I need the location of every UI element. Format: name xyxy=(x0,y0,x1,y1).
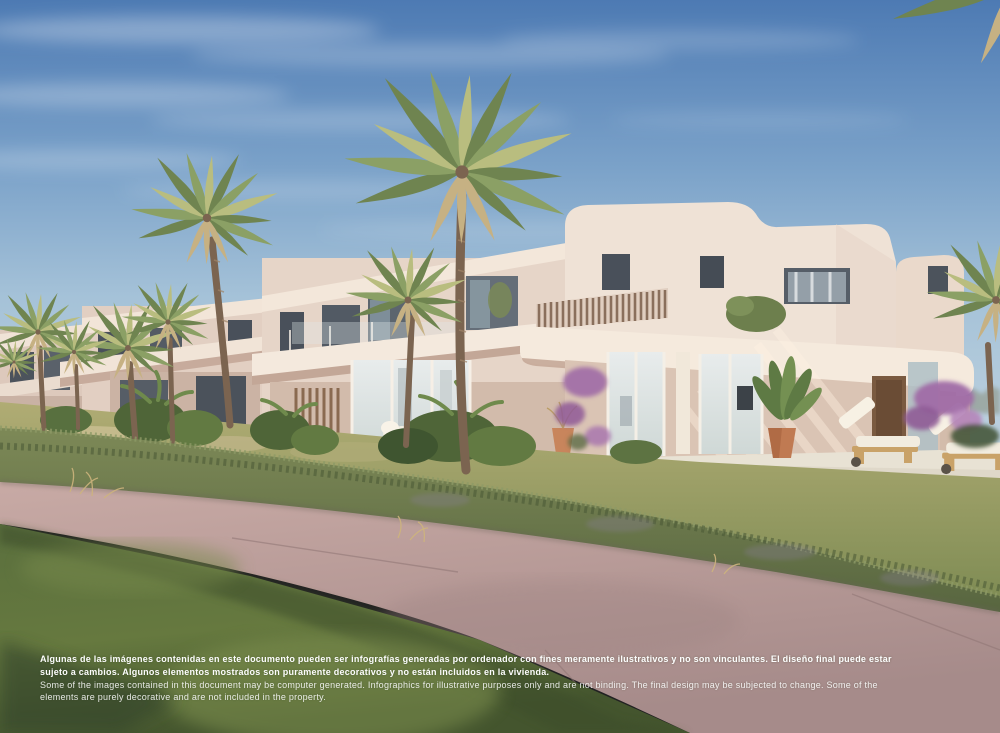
property-render-image: Algunas de las imágenes contenidas en es… xyxy=(0,0,1000,733)
disclaimer-es-line2: sujeto a cambios. Algunos elementos most… xyxy=(40,666,970,679)
disclaimer-text: Algunas de las imágenes contenidas en es… xyxy=(40,653,970,704)
render-scene xyxy=(0,0,1000,733)
disclaimer-es-line1: Algunas de las imágenes contenidas en es… xyxy=(40,653,970,666)
disclaimer-en-line2: elements are purely decorative and are n… xyxy=(40,691,970,704)
disclaimer-en-line1: Some of the images contained in this doc… xyxy=(40,679,970,692)
curtained-window xyxy=(784,268,850,304)
